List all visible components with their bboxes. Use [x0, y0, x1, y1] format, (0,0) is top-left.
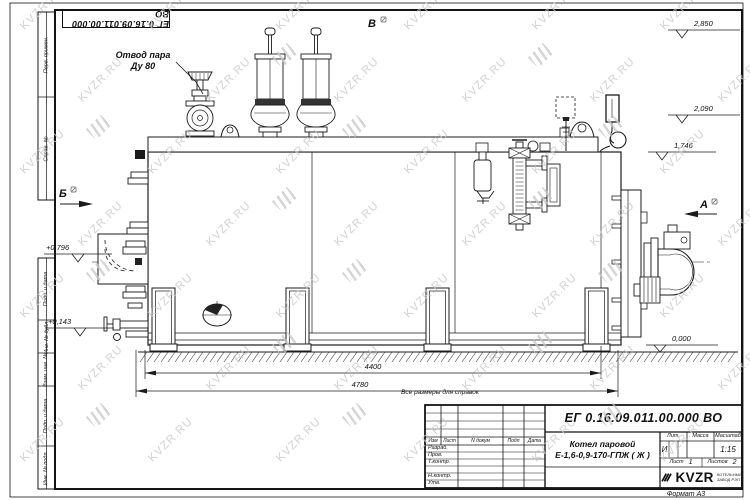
frame-col-sprav-no: Справ. № — [38, 97, 55, 200]
company-logo: KVZR КОТЕЛЬНЫЙ ЗАВОД РЭП — [660, 467, 742, 488]
tb-row-tkontr: Т.контр. — [426, 459, 458, 466]
tb-row-nkontr: Н.контр. — [426, 473, 458, 480]
elevation-shell: 1,746 — [674, 141, 694, 150]
steam-outlet-callout: Отвод пара Ду 80 — [106, 50, 180, 72]
blowdown-valves — [104, 317, 148, 341]
frame-col-vzam-inv: Взам. инв. № — [38, 353, 55, 386]
tb-row-utv: Утв. — [426, 480, 458, 487]
view-label-right: А — [699, 199, 708, 211]
reference-note: Все размеры для справок — [396, 389, 484, 398]
elevation-burner-axis: +0,796 — [46, 243, 70, 252]
tb-product-name: Котел паровой Е-1,6-0,9-170-ГПЖ ( Ж ) — [545, 434, 660, 465]
safety-valve — [251, 28, 289, 137]
elevation-top: 2,850 — [693, 19, 714, 28]
coil-logo-icon — [660, 470, 672, 485]
logo-text: KVZR — [675, 470, 713, 485]
boiler-assembly — [92, 28, 738, 362]
top-designation-box: ЕГ 0.16.09.011.00.000 ВО — [62, 10, 170, 28]
view-label-left: Б — [59, 188, 67, 200]
tb-col-ndoc: N докум — [458, 437, 503, 445]
frame-col-inv-dubl: Инв. № дубл. — [38, 320, 55, 353]
tb-sheet: Лист 1 — [660, 458, 702, 467]
tb-doc-number: ЕГ 0.16.09.011.00.000 ВО — [545, 405, 742, 432]
safety-valve — [297, 28, 335, 137]
tb-mass-label: Масса — [687, 432, 714, 441]
lifting-lug — [221, 125, 239, 137]
tb-scale-label: Масштаб — [714, 432, 742, 441]
tb-col-podp: Подп — [503, 437, 524, 445]
burner — [634, 225, 694, 303]
tb-row-razrab: Разраб. — [426, 445, 458, 452]
logo-subtitle: КОТЕЛЬНЫЙ ЗАВОД РЭП — [717, 473, 742, 482]
dim-overall-length: 4780 — [352, 380, 370, 389]
drawing-sheet: 2,850 2,090 1,746 +0,796 +0,143 0,000 44… — [0, 0, 750, 500]
steam-outlet-valve — [186, 72, 214, 136]
ground-hatch — [140, 352, 735, 362]
tb-scale-value: 1:15 — [714, 441, 742, 458]
dim-supports-span: 4400 — [365, 362, 383, 371]
tb-row-prov: Пров. — [426, 452, 458, 459]
elevation-drum: 2,090 — [693, 104, 714, 113]
view-label-top: В — [368, 18, 376, 30]
frame-col-perv-primen: Перв. примен. — [38, 12, 55, 97]
tb-col-izm: Изм — [425, 437, 441, 445]
tb-sheets: Листов 2 — [702, 458, 742, 467]
tb-col-data: Дата — [524, 437, 545, 445]
elevation-ground: 0,000 — [672, 334, 692, 343]
format-note: Формат А3 — [630, 489, 742, 499]
frame-col-podp-data-2: Подп. и дата — [38, 386, 55, 446]
frame-col-podp-data-1: Подп. и дата — [38, 258, 55, 320]
frame-col-inv-podl: Инв. № подл. — [38, 446, 55, 489]
tb-lit-label: Лит. — [660, 432, 687, 441]
tb-lit-value: И — [660, 441, 669, 458]
tb-col-list: Лист — [441, 437, 458, 445]
